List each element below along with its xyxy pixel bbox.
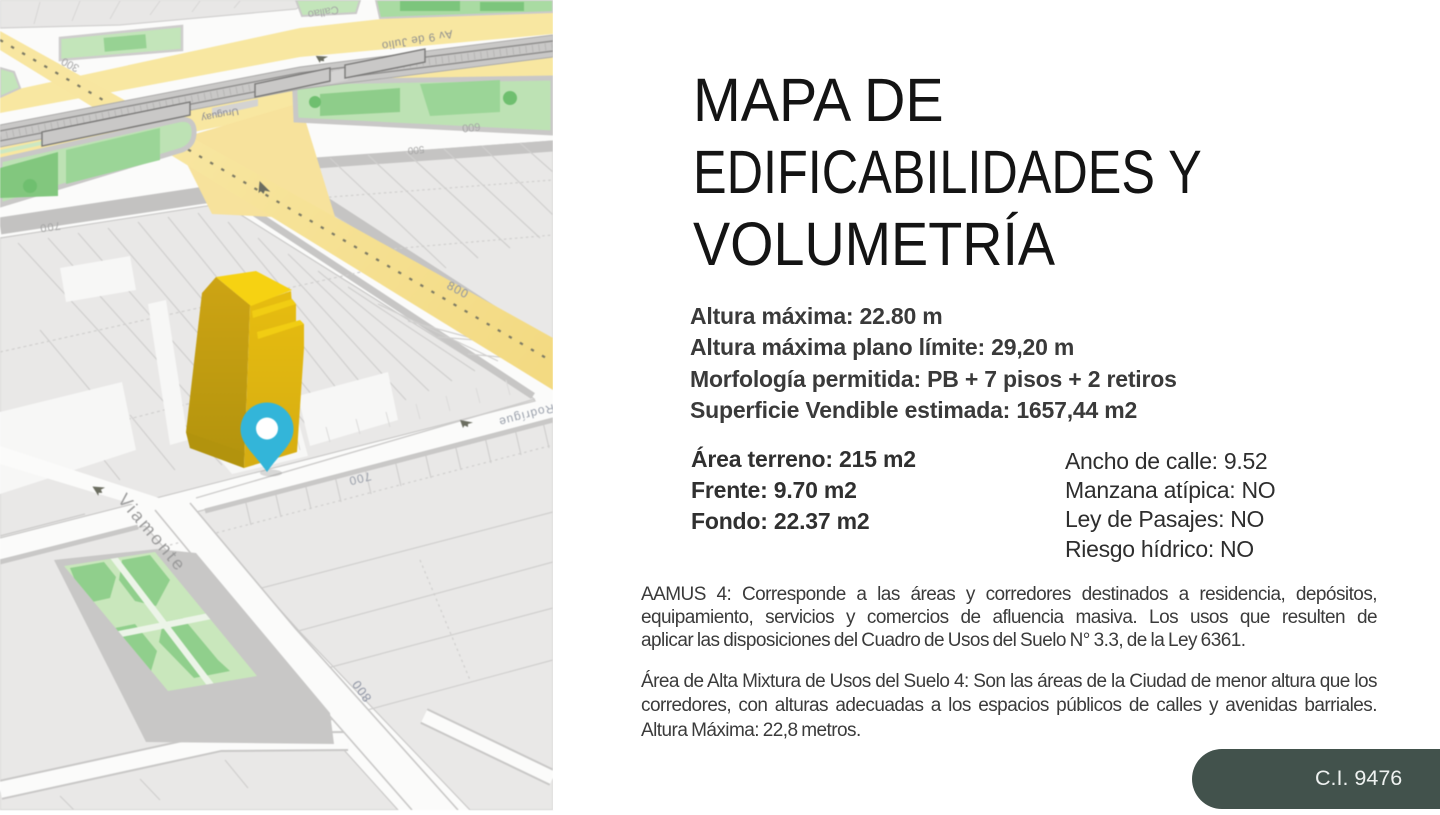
svg-text:500: 500 <box>407 143 425 156</box>
svg-text:600: 600 <box>461 120 481 134</box>
